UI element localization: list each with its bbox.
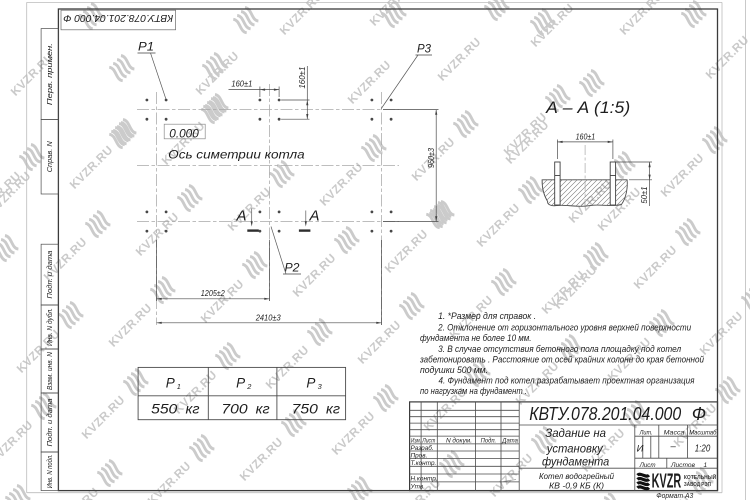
svg-text:КВ -0,9 КБ (К): КВ -0,9 КБ (К) [549,481,604,490]
svg-text:КОТЕЛЬНЫЙ: КОТЕЛЬНЫЙ [684,473,716,481]
svg-text:Справ. N: Справ. N [47,140,54,172]
svg-text:0.000: 0.000 [169,126,199,140]
svg-text:КВТУ.078.201.04.000 Ф: КВТУ.078.201.04.000 Ф [63,12,173,23]
svg-text:750: 750 [292,401,319,416]
svg-text:50±1: 50±1 [640,187,649,204]
svg-text:N докум.: N докум. [446,436,472,444]
svg-text:КВТУ.078.201.04.000: КВТУ.078.201.04.000 [529,404,681,424]
svg-text:1: 1 [704,462,708,469]
svg-text:4. Фундамент под котел раз: 4. Фундамент под котел разрабатывает про… [439,375,695,386]
svg-text:550: 550 [151,401,178,416]
svg-text:кг: кг [256,401,270,416]
svg-text:Перв. примен.: Перв. примен. [47,43,54,105]
svg-text:ЗАВОД РЭП: ЗАВОД РЭП [684,482,711,488]
svg-text:Утв.: Утв. [410,484,426,491]
svg-text:Взам. инв. N: Взам. инв. N [47,351,54,390]
svg-text:–: – [670,441,677,452]
svg-text:Изм.: Изм. [411,437,421,444]
svg-text:1: 1 [177,382,181,391]
svg-text:Лист: Лист [422,437,436,444]
svg-text:Лист: Лист [639,462,657,469]
svg-text:160±1: 160±1 [231,80,252,89]
svg-text:А – А (1:5): А – А (1:5) [545,98,630,117]
svg-text:Котел водогрейный: Котел водогрейный [539,472,614,481]
svg-text:забетонировать . Расстояние: забетонировать . Расстояние от осей край… [419,354,705,365]
svg-text:2410±3: 2410±3 [255,313,281,322]
svg-text:Подп. и дата: Подп. и дата [46,398,54,446]
svg-text:P2: P2 [285,263,301,275]
svg-text:Листов: Листов [670,462,696,469]
svg-text:А: А [236,208,247,225]
svg-text:160±1: 160±1 [298,67,307,89]
svg-text:P3: P3 [417,44,432,56]
svg-text:А: А [309,208,320,225]
svg-text:Разраб.: Разраб. [411,444,434,452]
svg-text:Инв. N дубл.: Инв. N дубл. [46,308,54,346]
svg-text:P1: P1 [138,42,154,54]
svg-text:960±3: 960±3 [427,148,436,168]
svg-text:Дата: Дата [501,437,518,444]
svg-text:Н.контр.: Н.контр. [411,476,438,483]
svg-text:Р: Р [166,376,175,391]
svg-text:1205±2: 1205±2 [201,289,225,298]
svg-text:700: 700 [221,401,248,416]
svg-text:Формат А3: Формат А3 [656,491,694,500]
svg-text:1. *Размер для справок .: 1. *Размер для справок . [438,310,536,321]
svg-text:Ось симетрии котла: Ось симетрии котла [168,148,305,162]
svg-text:Подп. и дата: Подп. и дата [46,250,54,298]
svg-text:Инв. N подл.: Инв. N подл. [46,454,54,488]
svg-text:160±1: 160±1 [576,132,596,141]
svg-text:Пров.: Пров. [411,452,428,459]
svg-text:2: 2 [246,382,251,391]
svg-text:Масштаб: Масштаб [689,428,717,436]
svg-text:Подп.: Подп. [481,436,497,444]
svg-text:Масса: Масса [664,429,685,436]
svg-text:Лит.: Лит. [639,429,653,436]
svg-text:по нагрузкам на фундамент .: по нагрузкам на фундамент . [420,385,527,396]
svg-text:кг: кг [326,401,340,416]
svg-text:Ф: Ф [692,404,706,424]
svg-text:Задание на: Задание на [545,426,606,440]
svg-text:3. В случае отсутствия бет: 3. В случае отсутствия бетонного пола пл… [438,343,682,354]
svg-text:фундамента: фундамента [542,455,609,469]
svg-text:2. Отклонение от горизонтал: 2. Отклонение от горизонтального уровня … [437,322,692,333]
svg-text:Т.контр.: Т.контр. [411,460,437,467]
svg-text:И: И [637,443,644,454]
svg-text:Р: Р [236,376,245,391]
svg-text:1:20: 1:20 [695,444,711,455]
svg-text:фундамента не более 10 мм.: фундамента не более 10 мм. [420,332,532,343]
svg-text:подушки 500 мм.: подушки 500 мм. [420,364,488,375]
svg-text:KVZR: KVZR [652,471,682,493]
svg-text:кг: кг [186,401,200,416]
svg-text:установку: установку [546,442,604,456]
svg-text:Р: Р [306,376,315,391]
